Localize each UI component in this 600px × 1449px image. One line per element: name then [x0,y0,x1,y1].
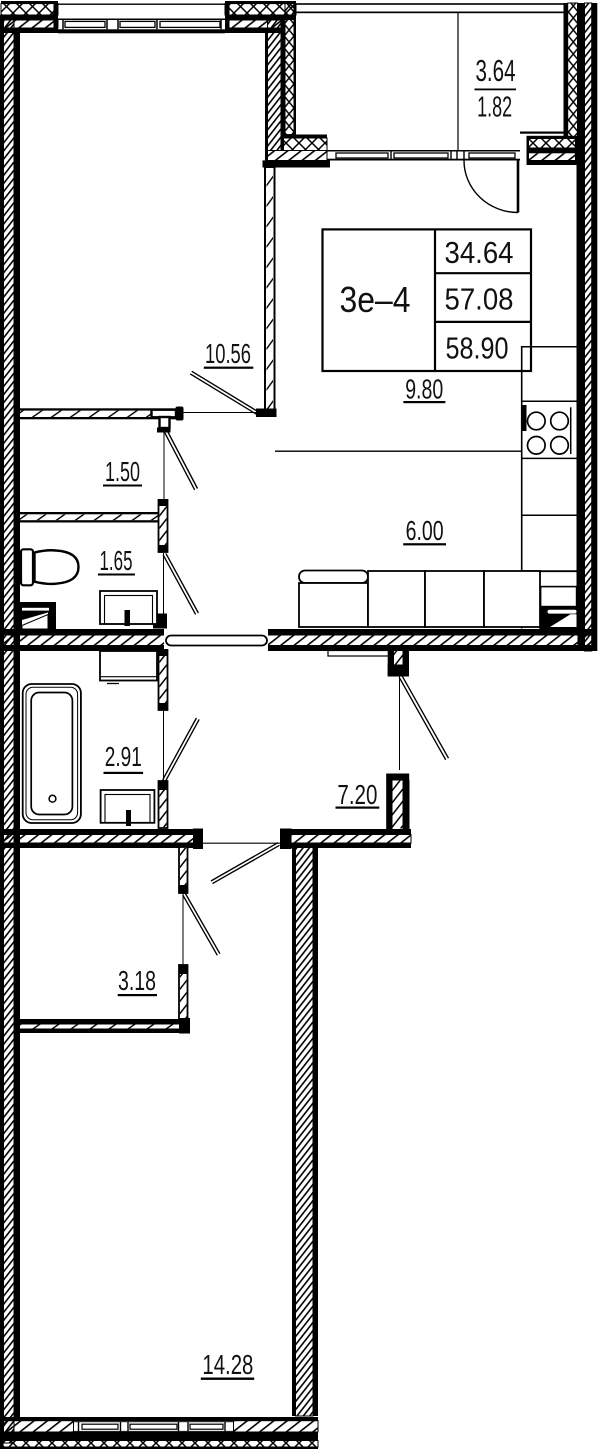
svg-text:3е–4: 3е–4 [340,279,411,320]
svg-text:1.82: 1.82 [477,92,512,124]
svg-text:10.56: 10.56 [205,338,251,369]
svg-text:9.80: 9.80 [405,374,443,405]
svg-text:58.90: 58.90 [446,331,509,366]
svg-text:6.00: 6.00 [406,515,444,546]
svg-text:1.65: 1.65 [100,545,133,576]
svg-text:3.64: 3.64 [476,53,516,88]
svg-text:3.18: 3.18 [118,965,156,996]
svg-text:34.64: 34.64 [445,235,514,270]
svg-text:7.20: 7.20 [337,779,377,810]
svg-text:57.08: 57.08 [445,282,514,317]
svg-text:1.50: 1.50 [105,456,140,487]
svg-text:2.91: 2.91 [105,741,142,772]
svg-text:14.28: 14.28 [202,1349,253,1380]
